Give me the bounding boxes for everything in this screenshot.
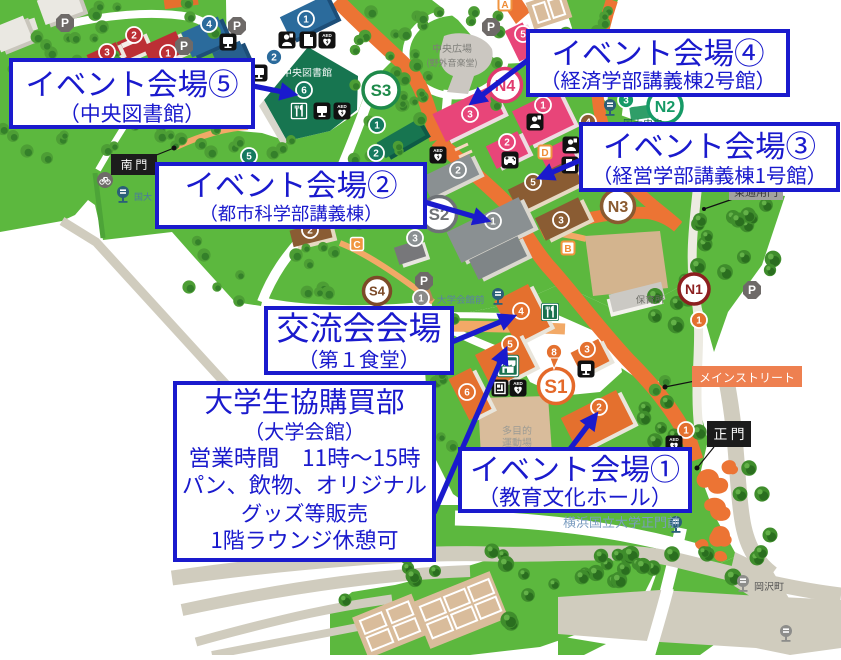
svg-text:P: P: [61, 16, 69, 30]
svg-text:2: 2: [504, 138, 510, 149]
svg-text:5: 5: [530, 178, 536, 189]
svg-text:B: B: [564, 244, 571, 255]
svg-text:3: 3: [623, 96, 629, 107]
svg-text:N1: N1: [685, 281, 703, 297]
svg-text:2: 2: [131, 31, 137, 42]
svg-text:P: P: [180, 39, 188, 53]
svg-text:1: 1: [418, 294, 424, 305]
svg-text:P: P: [487, 20, 495, 34]
svg-text:S4: S4: [369, 284, 386, 299]
svg-text:1: 1: [490, 217, 496, 228]
svg-text:2: 2: [455, 166, 461, 177]
svg-text:S3: S3: [371, 81, 392, 100]
svg-text:N3: N3: [608, 199, 629, 216]
svg-text:3: 3: [412, 234, 418, 245]
svg-text:3: 3: [584, 345, 590, 356]
svg-text:A: A: [501, 0, 508, 11]
svg-text:P: P: [420, 274, 428, 288]
svg-text:5: 5: [246, 152, 252, 163]
svg-text:5: 5: [507, 340, 513, 351]
svg-text:S1: S1: [544, 377, 568, 398]
svg-text:3: 3: [558, 216, 564, 227]
svg-text:C: C: [353, 240, 360, 251]
svg-text:D: D: [541, 148, 548, 159]
svg-text:P: P: [748, 283, 756, 297]
svg-text:8: 8: [551, 348, 557, 359]
svg-text:3: 3: [467, 110, 473, 121]
svg-text:1: 1: [696, 316, 702, 327]
svg-text:2: 2: [373, 149, 379, 160]
svg-text:4: 4: [518, 307, 524, 318]
svg-text:1: 1: [540, 101, 546, 112]
svg-text:1: 1: [683, 426, 689, 437]
svg-text:6: 6: [464, 388, 470, 399]
svg-text:1: 1: [374, 121, 380, 132]
svg-text:2: 2: [596, 403, 602, 414]
svg-text:5: 5: [520, 30, 526, 41]
svg-text:1: 1: [303, 15, 309, 26]
svg-text:4: 4: [206, 20, 212, 31]
svg-text:3: 3: [104, 48, 110, 59]
svg-text:N2: N2: [655, 99, 676, 116]
svg-text:6: 6: [301, 86, 307, 97]
svg-text:1: 1: [165, 49, 171, 60]
svg-text:P: P: [233, 19, 241, 33]
svg-text:2: 2: [271, 53, 277, 64]
